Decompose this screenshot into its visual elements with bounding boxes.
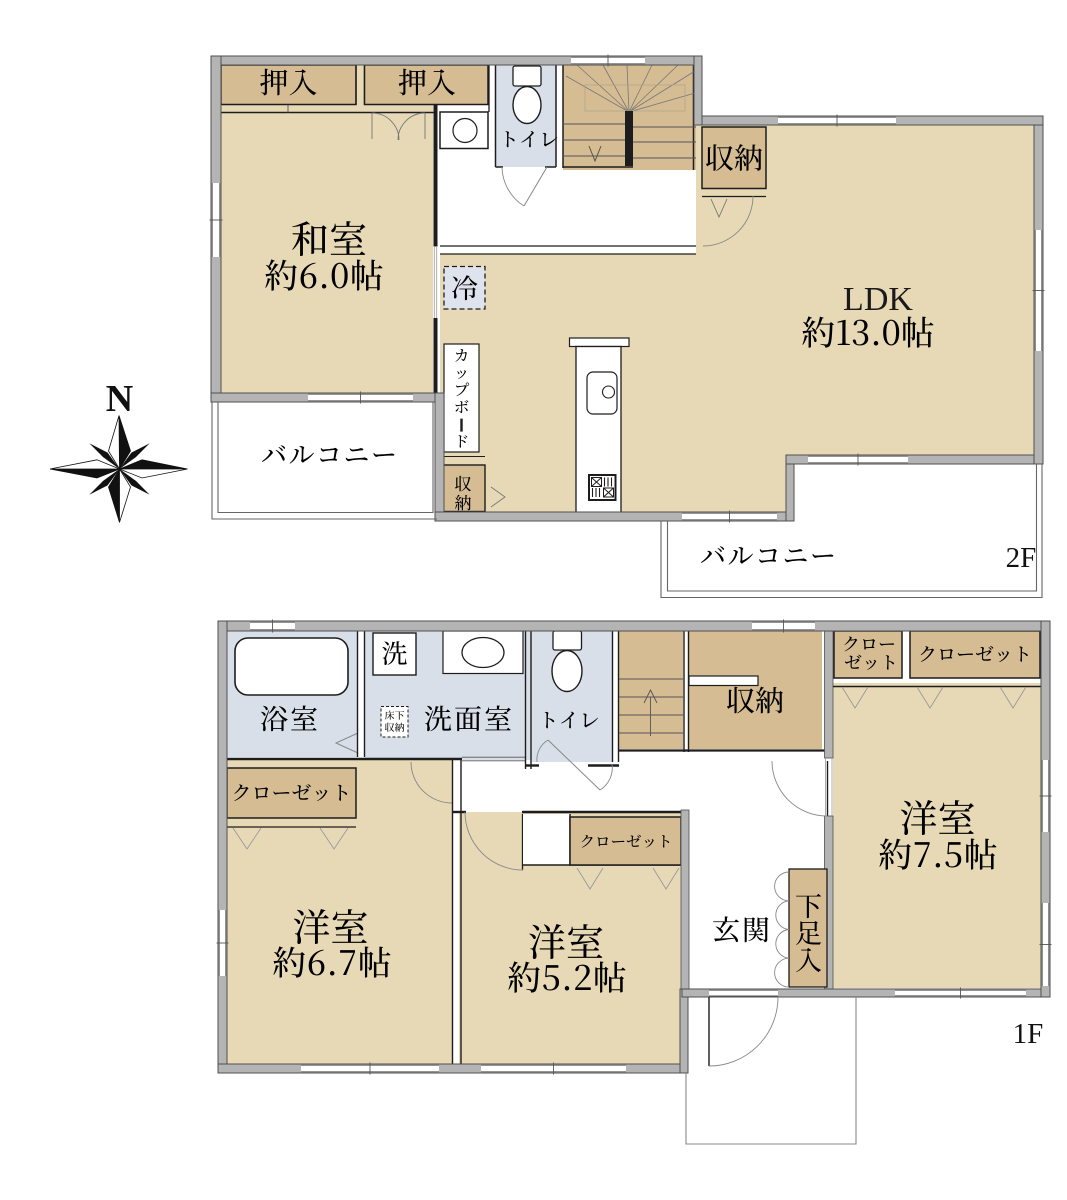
svg-text:1F: 1F bbox=[1013, 1018, 1044, 1050]
svg-text:N: N bbox=[106, 378, 133, 420]
svg-text:LDK: LDK bbox=[843, 281, 913, 318]
svg-text:2F: 2F bbox=[1006, 542, 1037, 574]
